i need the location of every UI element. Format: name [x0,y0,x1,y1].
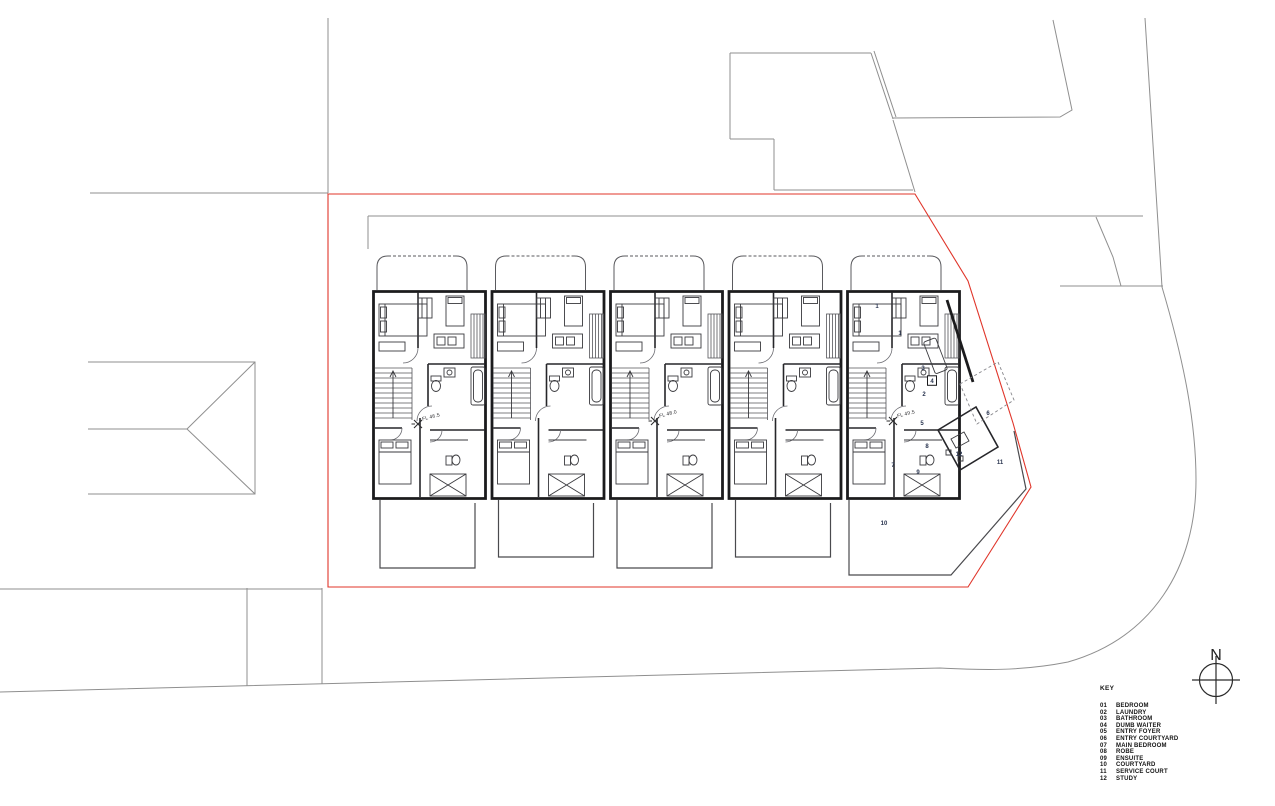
key-item-label: ENTRY FOYER [1116,729,1161,736]
key-item: 11SERVICE COURT [1100,769,1178,776]
key-item-code: 04 [1100,723,1116,730]
key-item: 10COURTYARD [1100,762,1178,769]
unit-4 [729,256,841,557]
room-number: 2 [922,392,926,398]
key-item-label: DUMB WAITER [1116,723,1161,730]
key-item-label: STUDY [1116,776,1137,783]
key-items: 01BEDROOM02LAUNDRY03BATHROOM04DUMB WAITE… [1100,703,1178,782]
room-number: 12 [956,452,963,458]
key-item: 12STUDY [1100,776,1178,783]
unit-5-wing [849,300,1026,575]
context-lines [0,18,1196,692]
svg-text:6: 6 [986,411,990,417]
key-item-code: 10 [1100,762,1116,769]
floor-level-label: FL 46.5 [422,412,441,422]
key-item-label: SERVICE COURT [1116,769,1168,776]
key-item-label: COURTYARD [1116,762,1156,769]
north-arrow: N [1192,647,1240,704]
floor-level-marker: FL 49.5 [887,409,916,425]
svg-text:3: 3 [921,366,925,372]
key-item: 05ENTRY FOYER [1100,729,1178,736]
key-item-label: BATHROOM [1116,716,1152,723]
room-number: 8 [925,444,929,450]
key-item-code: 03 [1100,716,1116,723]
key-item-label: ENTRY COURTYARD [1116,736,1178,743]
floor-level-marker: FL 48.0 [649,409,678,425]
key-item-label: ROBE [1116,749,1134,756]
svg-text:5: 5 [920,421,924,427]
svg-text:1: 1 [898,331,902,337]
unit-2 [492,256,604,557]
key-legend: KEY 01BEDROOM02LAUNDRY03BATHROOM04DUMB W… [1100,685,1178,782]
floor-level-label: FL 48.0 [659,409,678,419]
key-item-code: 11 [1100,769,1116,776]
key-item-label: ENSUITE [1116,756,1143,763]
neighbour-roof-west [88,362,255,494]
svg-text:11: 11 [997,460,1004,466]
floor-level-label: FL 49.5 [897,409,916,419]
key-item-code: 06 [1100,736,1116,743]
svg-text:8: 8 [925,444,929,450]
key-item: 01BEDROOM [1100,703,1178,710]
room-number: 11 [997,460,1004,466]
key-item: 06ENTRY COURTYARD [1100,736,1178,743]
key-item-label: LAUNDRY [1116,710,1147,717]
bathtub [923,338,947,374]
room-number: 5 [920,421,924,427]
room-number: 9 [916,470,920,476]
svg-text:1: 1 [875,304,879,310]
key-item-code: 07 [1100,743,1116,750]
key-item-label: BEDROOM [1116,703,1149,710]
room-number: 4 [928,376,937,386]
unit-1 [374,256,486,568]
key-item-code: 12 [1100,776,1116,783]
key-item: 03BATHROOM [1100,716,1178,723]
room-number: 3 [921,366,925,372]
unit-5 [848,256,960,499]
svg-text:10: 10 [881,521,888,527]
key-item-code: 09 [1100,756,1116,763]
key-item: 07MAIN BEDROOM [1100,743,1178,750]
site-plan-sheet: FL 46.5FL 48.0FL 49.5 1134256789121110 N… [0,0,1275,806]
room-number: 1 [875,304,879,310]
neighbour-building-north [730,51,915,192]
key-item-label: MAIN BEDROOM [1116,743,1167,750]
road-edge [0,18,1196,692]
svg-text:9: 9 [916,470,920,476]
room-number: 10 [881,521,888,527]
room-number: 6 [986,411,990,417]
svg-text:2: 2 [922,392,926,398]
key-item-code: 01 [1100,703,1116,710]
key-item: 08ROBE [1100,749,1178,756]
key-item-code: 08 [1100,749,1116,756]
key-item: 02LAUNDRY [1100,710,1178,717]
room-number: 1 [898,331,902,337]
svg-text:12: 12 [956,452,963,458]
key-title: KEY [1100,685,1178,692]
units [374,256,1027,575]
key-item-code: 05 [1100,729,1116,736]
courtyard-wall [849,431,1026,575]
key-item: 04DUMB WAITER [1100,723,1178,730]
key-item-code: 02 [1100,710,1116,717]
key-item: 09ENSUITE [1100,756,1178,763]
floor-plan-drawing: FL 46.5FL 48.0FL 49.5 1134256789121110 N [0,0,1275,806]
floor-level-marker: FL 46.5 [412,412,441,428]
